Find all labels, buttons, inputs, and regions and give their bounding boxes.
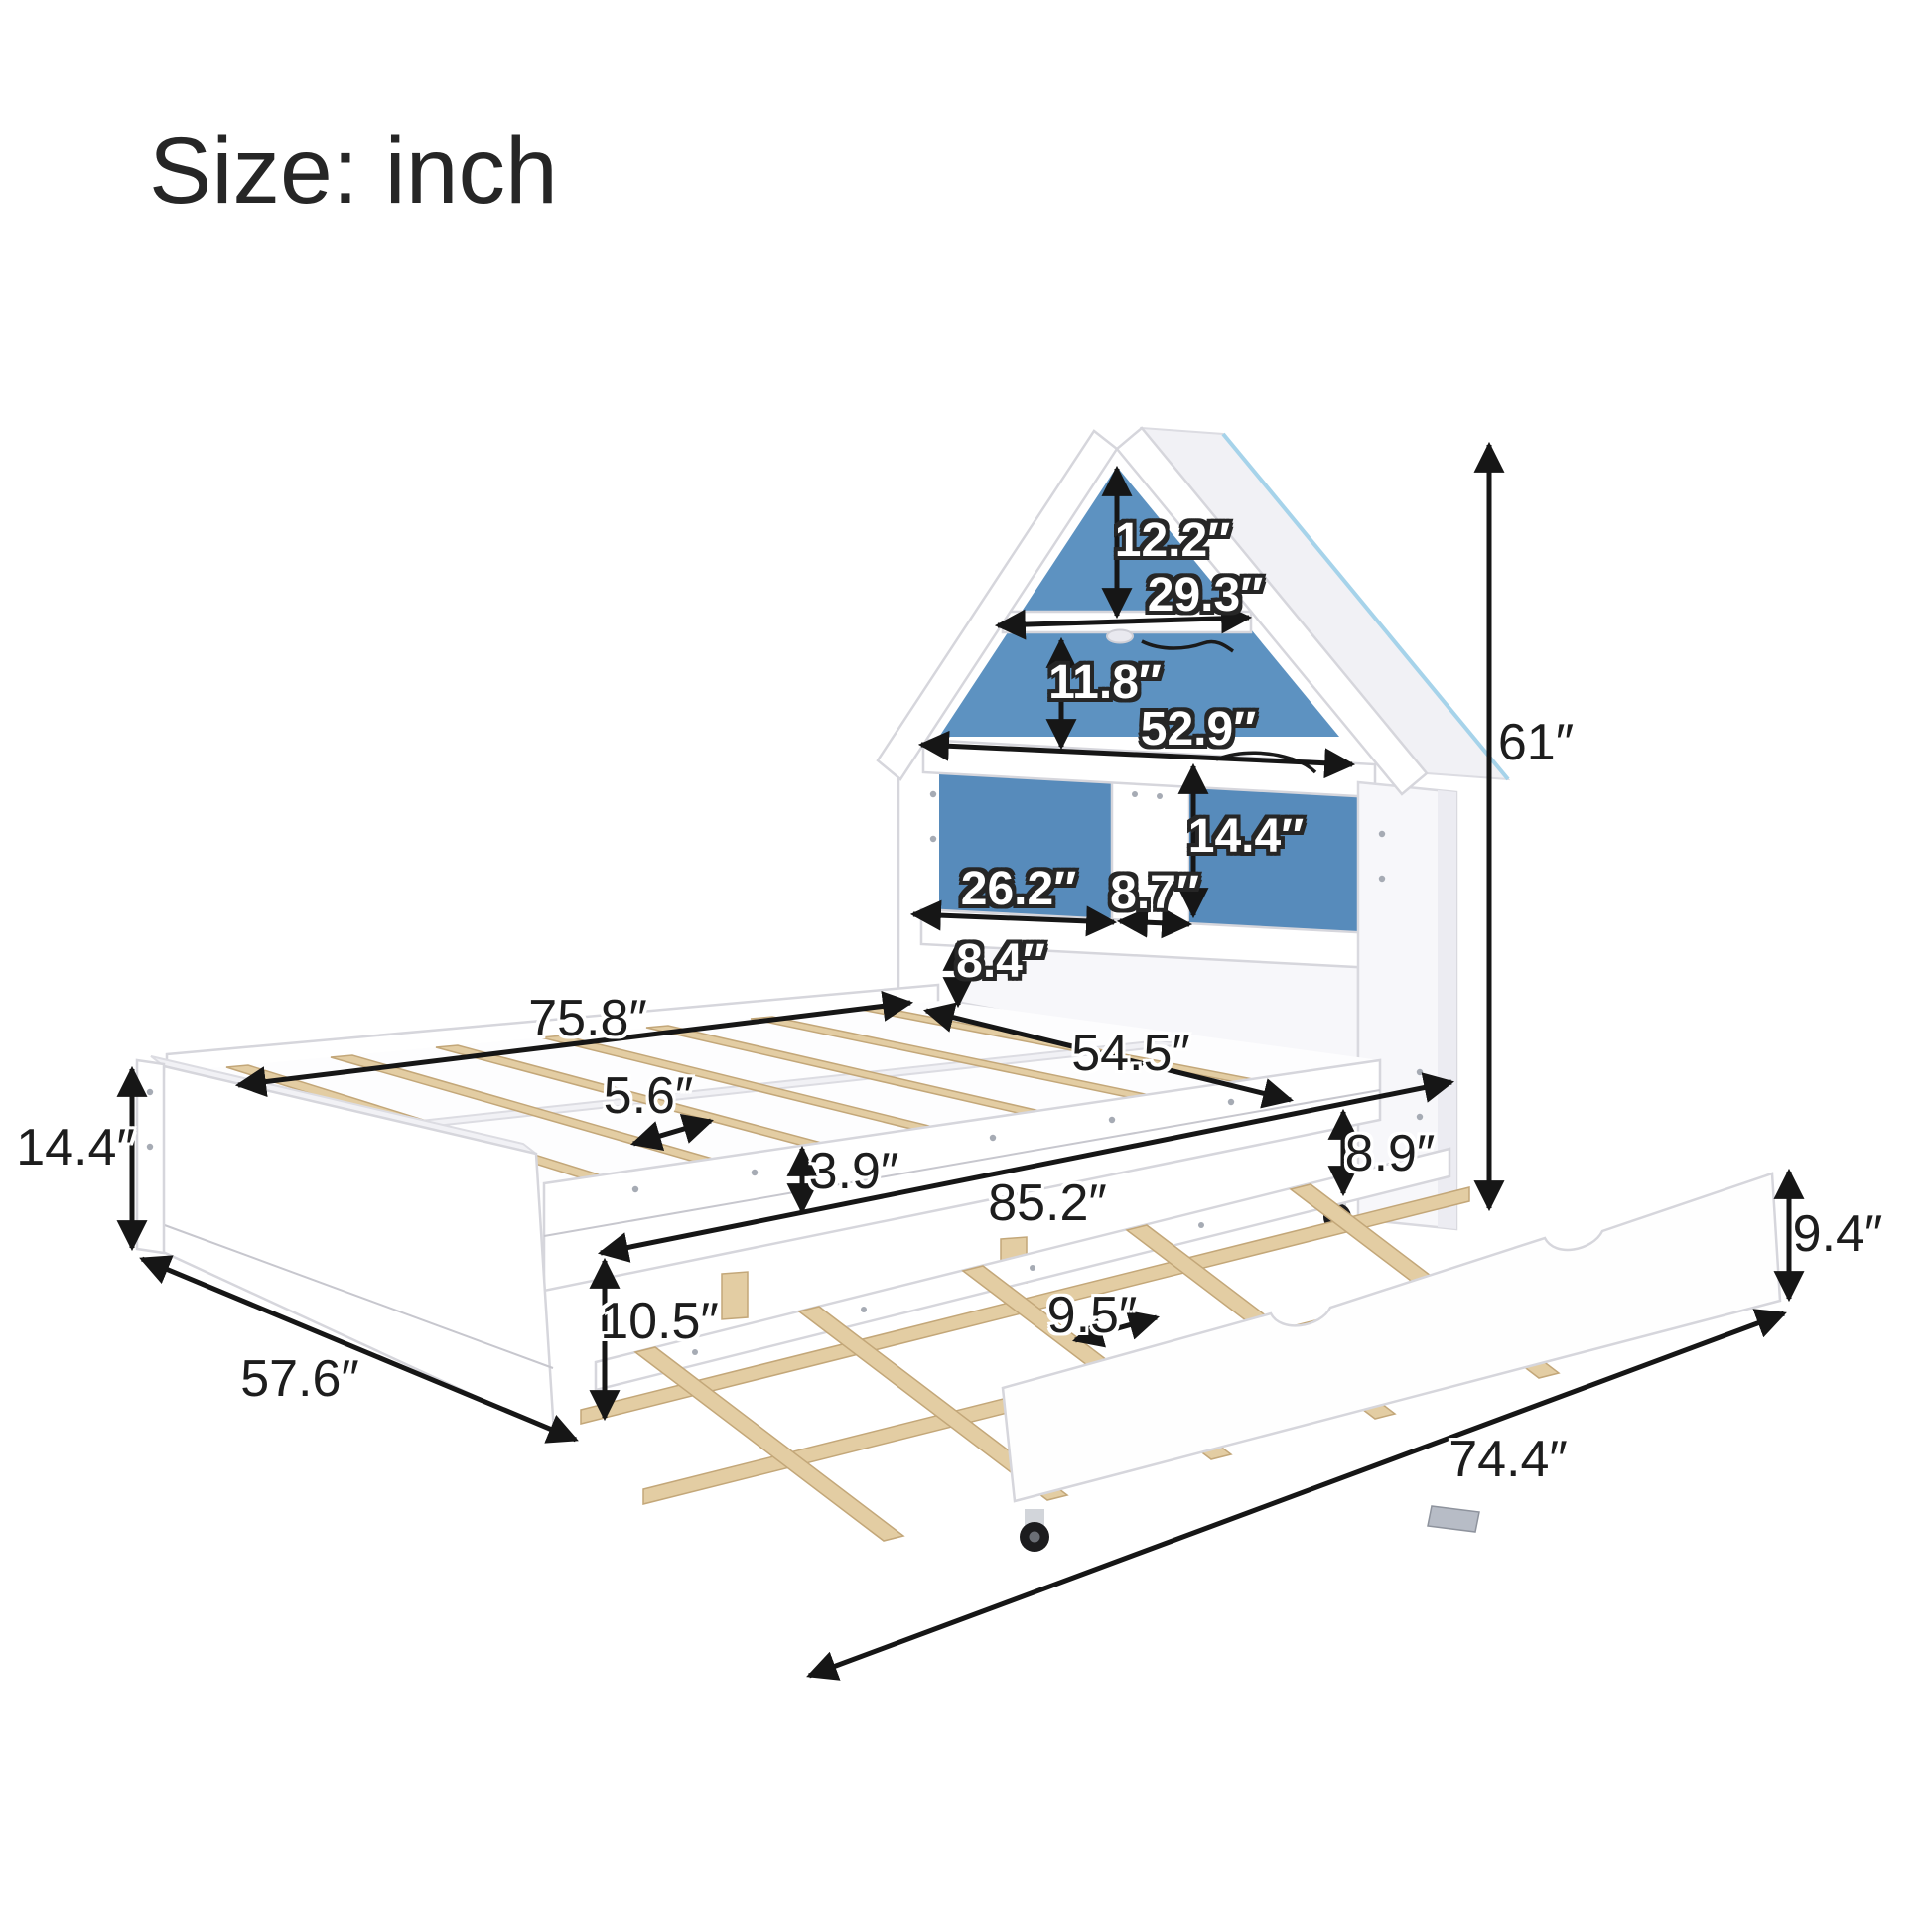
dim-label-slat-spacing: 5.6″ [604,1070,694,1122]
arrow-divider-width [1120,921,1189,924]
dim-label-cubby-height: 14.4″ [1188,813,1304,861]
dim-label-divider-width: 8.7″ [1110,870,1199,917]
trundle-caster [1020,1509,1049,1552]
dim-label-middle-section-height: 11.8″ [1048,659,1162,707]
dim-label-bed-width: 54.5″ [1071,1028,1190,1079]
dim-label-overall-height: 61″ [1498,717,1574,768]
dim-label-eave-shelf-width: 52.9″ [1141,706,1256,754]
dim-label-bed-length: 75.8″ [528,993,647,1044]
dim-label-trundle-length: 74.4″ [1449,1434,1568,1485]
product-dimension-diagram: Size: inch 12.2″ 29.3″ 11.8″ 52.9″ 14.4″… [0,0,1932,1932]
dim-label-trundle-slat-spacing: 9.5″ [1047,1290,1138,1341]
dim-label-rail-height: 3.9″ [809,1146,899,1197]
support-leg [722,1272,748,1319]
dim-label-left-cubby-width: 26.2″ [961,866,1076,913]
dim-label-frame-depth: 57.6″ [240,1353,359,1405]
dim-label-frame-height: 14.4″ [16,1122,135,1173]
led-light-dome [1107,630,1133,643]
dim-label-trundle-height: 9.4″ [1793,1208,1883,1260]
dim-label-shelf-to-bed-height: 8.4″ [956,938,1045,986]
page-title: Size: inch [149,117,558,225]
dim-label-trundle-clearance: 10.5″ [600,1296,719,1347]
dim-label-total-length: 85.2″ [988,1177,1107,1229]
metal-bracket [1428,1506,1479,1532]
dim-label-roof-peak-height: 12.2″ [1115,517,1230,565]
dim-label-under-bed-clearance: 8.9″ [1345,1128,1436,1179]
dim-label-gable-shelf-width: 29.3″ [1148,572,1263,620]
